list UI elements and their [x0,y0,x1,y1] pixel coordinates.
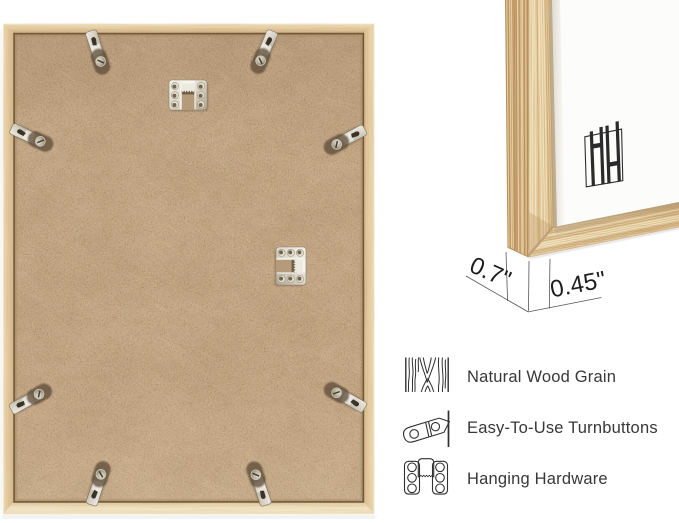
svg-text:Hanging Hardware: Hanging Hardware [467,470,608,488]
svg-text:Natural Wood Grain: Natural Wood Grain [467,368,616,386]
svg-text:Easy-To-Use Turnbuttons: Easy-To-Use Turnbuttons [467,419,658,437]
